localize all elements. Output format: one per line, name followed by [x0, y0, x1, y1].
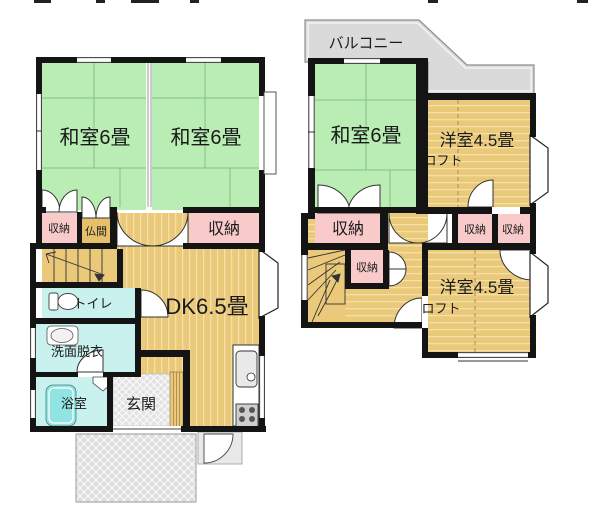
label-storage-right: 収納 — [208, 220, 240, 238]
label-washroom: 洗面脱衣 — [51, 344, 103, 359]
label-balcony: バルコニー — [329, 35, 404, 52]
label-entrance: 玄関 — [126, 396, 156, 413]
floorplan-page: 和室6畳 和室6畳 収納 仏間 収納 トイレ 洗面脱衣 浴室 玄関 DK6.5畳 — [0, 0, 600, 527]
label-storage-main-2f: 収納 — [332, 220, 364, 238]
label-storage-hall-2f: 収納 — [356, 261, 378, 274]
bay-window-bottom-2f — [530, 252, 548, 317]
floorplan-svg: 和室6畳 和室6畳 収納 仏間 収納 トイレ 洗面脱衣 浴室 玄関 DK6.5畳 — [0, 0, 600, 527]
label-washitsu-left: 和室6畳 — [59, 126, 130, 149]
label-loft-bottom: ロフト — [421, 301, 460, 316]
stairs-1f — [42, 249, 117, 282]
label-washitsu-2f: 和室6畳 — [330, 124, 401, 147]
kitchen-sink — [236, 351, 257, 387]
label-loft-top: ロフト — [423, 153, 462, 168]
bay-window-top-2f — [530, 135, 548, 205]
entrance-step — [170, 372, 183, 428]
label-western-bottom: 洋室4.5畳 — [440, 278, 515, 297]
label-western-top: 洋室4.5畳 — [440, 131, 515, 150]
porch — [76, 434, 196, 502]
floor-2f: バルコニー 和室6畳 洋室4.5畳 ロフト 収納 収納 収納 収納 洋室4.5畳… — [301, 20, 548, 361]
dk-bay-window — [259, 249, 278, 318]
label-storage-left: 収納 — [48, 222, 70, 235]
top-edge-artifacts — [34, 0, 588, 3]
washbasin-fixture — [47, 326, 78, 345]
label-dk: DK6.5畳 — [165, 294, 248, 319]
label-storage-b-2f: 収納 — [502, 223, 524, 236]
label-toilet: トイレ — [73, 296, 112, 311]
label-washitsu-right: 和室6畳 — [170, 126, 241, 149]
stairs-2f — [308, 249, 345, 322]
kitchen-unit — [233, 345, 259, 430]
fusuma-partition-1f — [148, 63, 151, 207]
label-bath: 浴室 — [61, 396, 87, 411]
floor-1f: 和室6畳 和室6畳 収納 仏間 収納 トイレ 洗面脱衣 浴室 玄関 DK6.5畳 — [30, 57, 278, 502]
label-storage-a-2f: 収納 — [464, 223, 486, 236]
label-butsuma: 仏間 — [85, 225, 107, 238]
